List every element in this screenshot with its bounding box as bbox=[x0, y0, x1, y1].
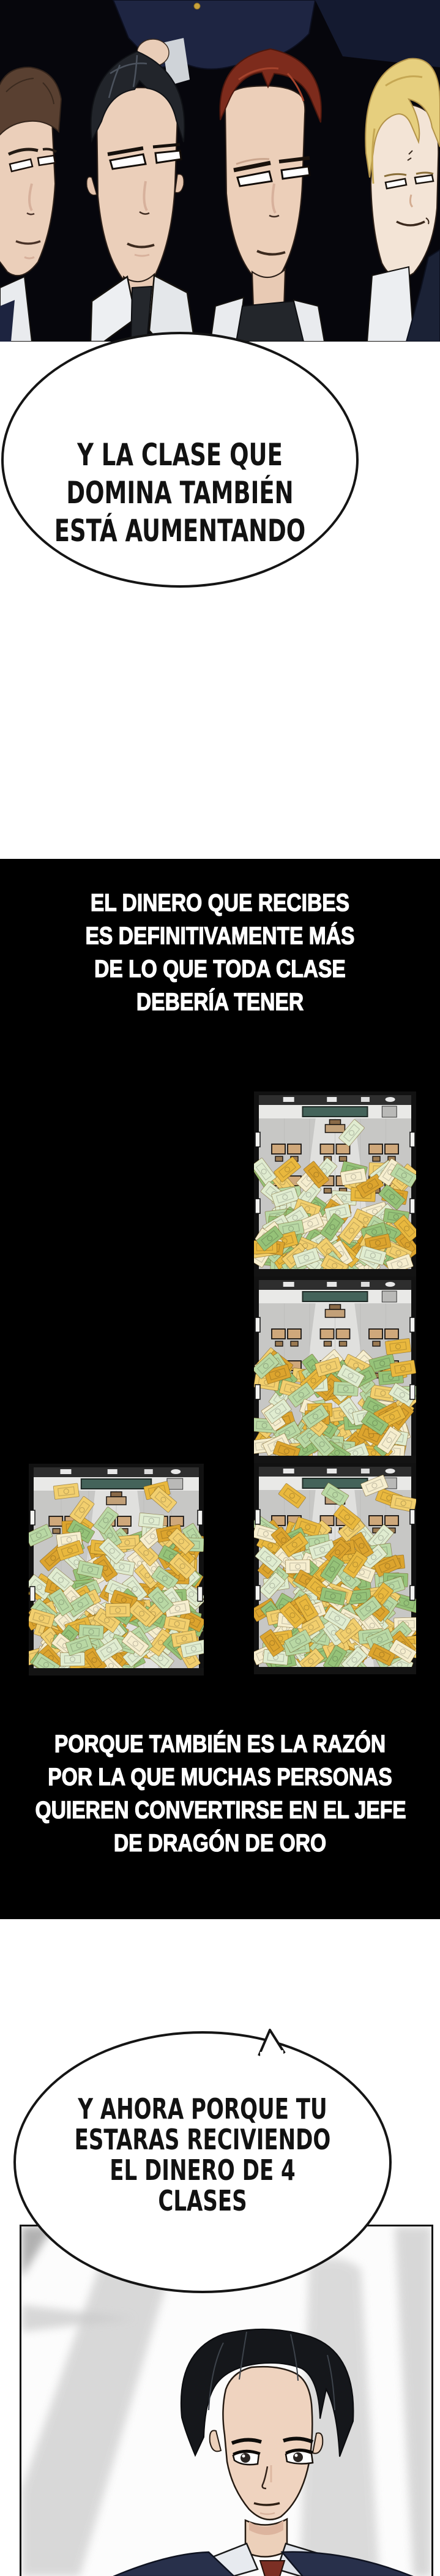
bubble1-line-3: ESTÁ AUMENTANDO bbox=[50, 512, 310, 550]
money-section: EL DINERO QUE RECIBES ES DEFINITIVAMENTE… bbox=[0, 859, 440, 1919]
caption2-line-1: PORQUE TAMBIÉN ES LA RAZÓN bbox=[35, 1728, 405, 1761]
caption-block-2: PORQUE TAMBIÉN ES LA RAZÓN POR LA QUE MU… bbox=[0, 1728, 440, 1860]
webtoon-page: Y LA CLASE QUE DOMINA TAMBIÉN ESTÁ AUMEN… bbox=[0, 0, 440, 2576]
speech-bubble-2: Y AHORA PORQUE TU ESTARAS RECIVIENDO EL … bbox=[13, 2031, 392, 2293]
caption-block-1: EL DINERO QUE RECIBES ES DEFINITIVAMENTE… bbox=[0, 886, 440, 1019]
bubble1-line-2: DOMINA TAMBIÉN bbox=[50, 474, 310, 512]
classroom-money-panel-1 bbox=[254, 1091, 416, 1276]
bubble1-line-1: Y LA CLASE QUE bbox=[50, 436, 310, 474]
caption2-line-4: DE DRAGÓN DE ORO bbox=[35, 1827, 405, 1860]
caption1-line-2: ES DEFINITIVAMENTE MÁS bbox=[35, 919, 405, 953]
caption2-line-3: QUIEREN CONVERTIRSE EN EL JEFE bbox=[35, 1794, 405, 1827]
top-story-panel bbox=[0, 0, 440, 342]
classroom-money-panel-2 bbox=[254, 1276, 416, 1463]
bubble2-line-3: EL DINERO DE 4 bbox=[64, 2155, 340, 2185]
caption1-line-3: DE LO QUE TODA CLASE bbox=[35, 953, 405, 986]
classroom-money-panel-4 bbox=[29, 1464, 204, 1676]
caption1-line-4: DEBERÍA TENER bbox=[35, 986, 405, 1019]
bubble-tail-icon bbox=[256, 2029, 287, 2057]
speech-bubble-1: Y LA CLASE QUE DOMINA TAMBIÉN ESTÁ AUMEN… bbox=[1, 332, 359, 588]
caption1-line-1: EL DINERO QUE RECIBES bbox=[35, 886, 405, 919]
classroom-money-panel-3 bbox=[254, 1463, 416, 1674]
five-students-illustration bbox=[0, 0, 440, 342]
student-blonde-hair bbox=[365, 59, 440, 342]
bubble2-line-2: ESTARAS RECIVIENDO bbox=[64, 2124, 340, 2155]
caption2-line-2: POR LA QUE MUCHAS PERSONAS bbox=[35, 1761, 405, 1794]
bubble2-line-1: Y AHORA PORQUE TU bbox=[64, 2094, 340, 2124]
bubble2-line-4: CLASES bbox=[64, 2185, 340, 2216]
